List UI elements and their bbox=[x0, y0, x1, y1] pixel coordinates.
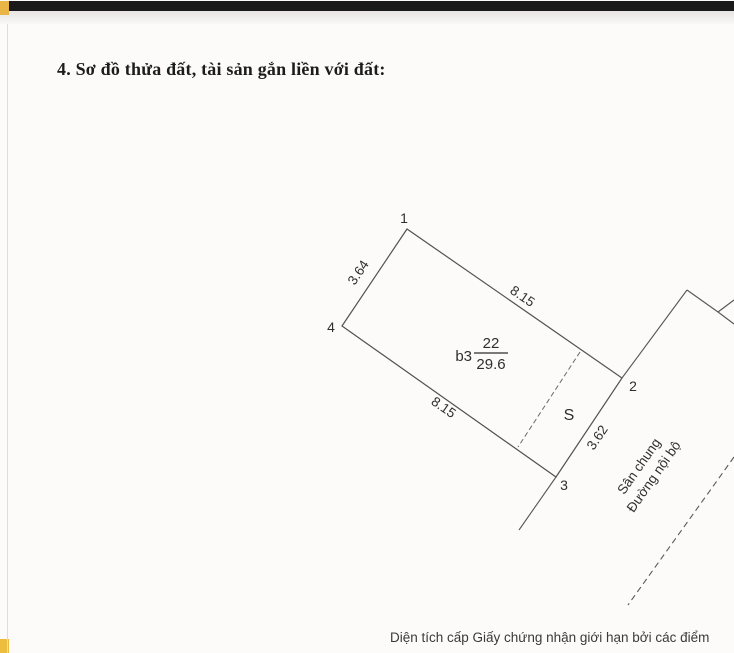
adjacent-parcel-line-1 bbox=[622, 290, 687, 378]
s-strip-label: S bbox=[564, 407, 575, 424]
adjacent-parcel-line-3 bbox=[718, 300, 734, 312]
adjacent-parcel-line-2 bbox=[687, 290, 734, 324]
vertex-label-4: 4 bbox=[327, 319, 335, 335]
edge-length-top: 8.15 bbox=[507, 283, 537, 310]
parcel-block-label: b3 bbox=[455, 348, 472, 365]
vertex-label-3: 3 bbox=[560, 477, 568, 493]
road-labels: Sân chung Đường nội bộ bbox=[609, 428, 684, 515]
vertex-label-1: 1 bbox=[400, 210, 408, 226]
footer-note: Diện tích cấp Giấy chứng nhận giới hạn b… bbox=[390, 630, 709, 645]
vertex-label-2: 2 bbox=[629, 378, 637, 394]
boundary-extension-line bbox=[519, 477, 556, 530]
parcel-diagram: 1 2 3 4 8.15 3.62 8.15 3.64 b3 22 29.6 S… bbox=[0, 0, 734, 653]
parcel-area: 29.6 bbox=[476, 356, 505, 373]
edge-length-right: 3.62 bbox=[584, 422, 611, 452]
edge-length-bottom: 8.15 bbox=[429, 394, 459, 421]
parcel-dashed-separator bbox=[518, 352, 580, 447]
parcel-number: 22 bbox=[483, 335, 500, 352]
edge-length-left: 3.64 bbox=[345, 257, 372, 288]
